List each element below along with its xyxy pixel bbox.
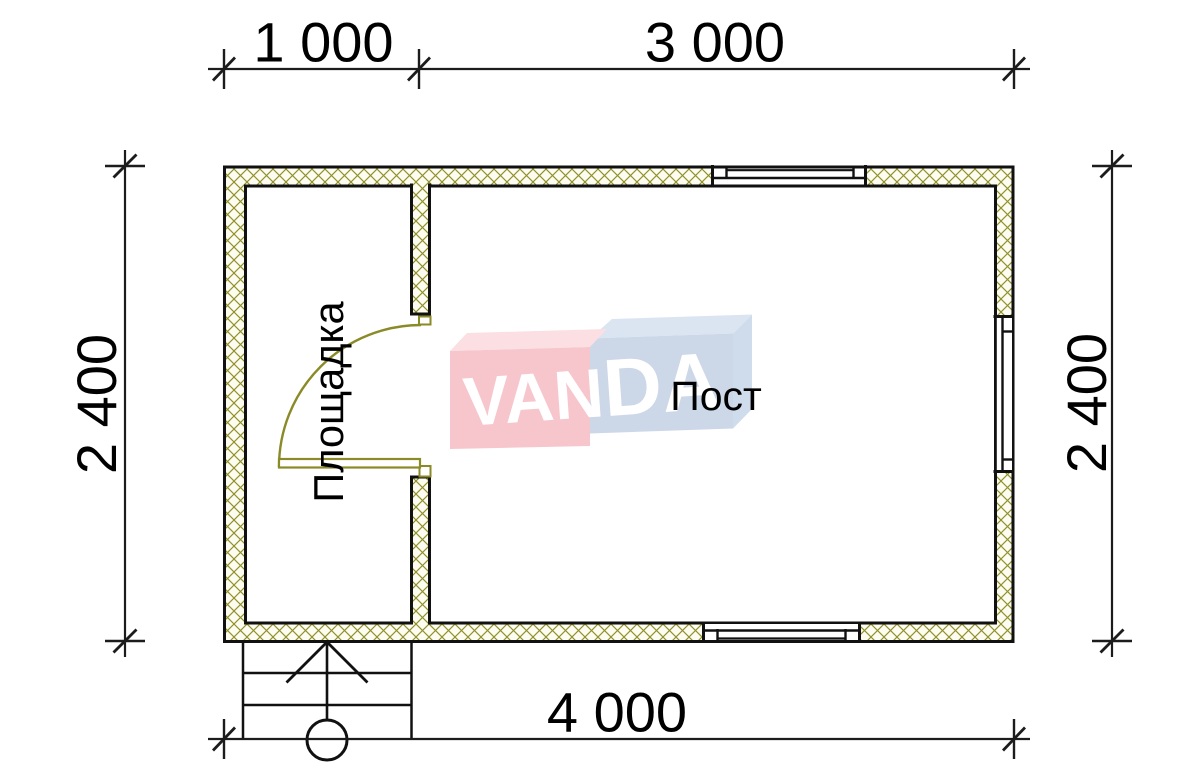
svg-text:Площадка: Площадка — [305, 300, 352, 502]
svg-text:3 000: 3 000 — [645, 11, 785, 74]
svg-text:2 400: 2 400 — [1055, 333, 1118, 473]
svg-text:4 000: 4 000 — [547, 681, 687, 744]
svg-text:2 400: 2 400 — [65, 334, 128, 474]
svg-text:Пост: Пост — [670, 373, 762, 419]
svg-text:1 000: 1 000 — [253, 11, 393, 74]
